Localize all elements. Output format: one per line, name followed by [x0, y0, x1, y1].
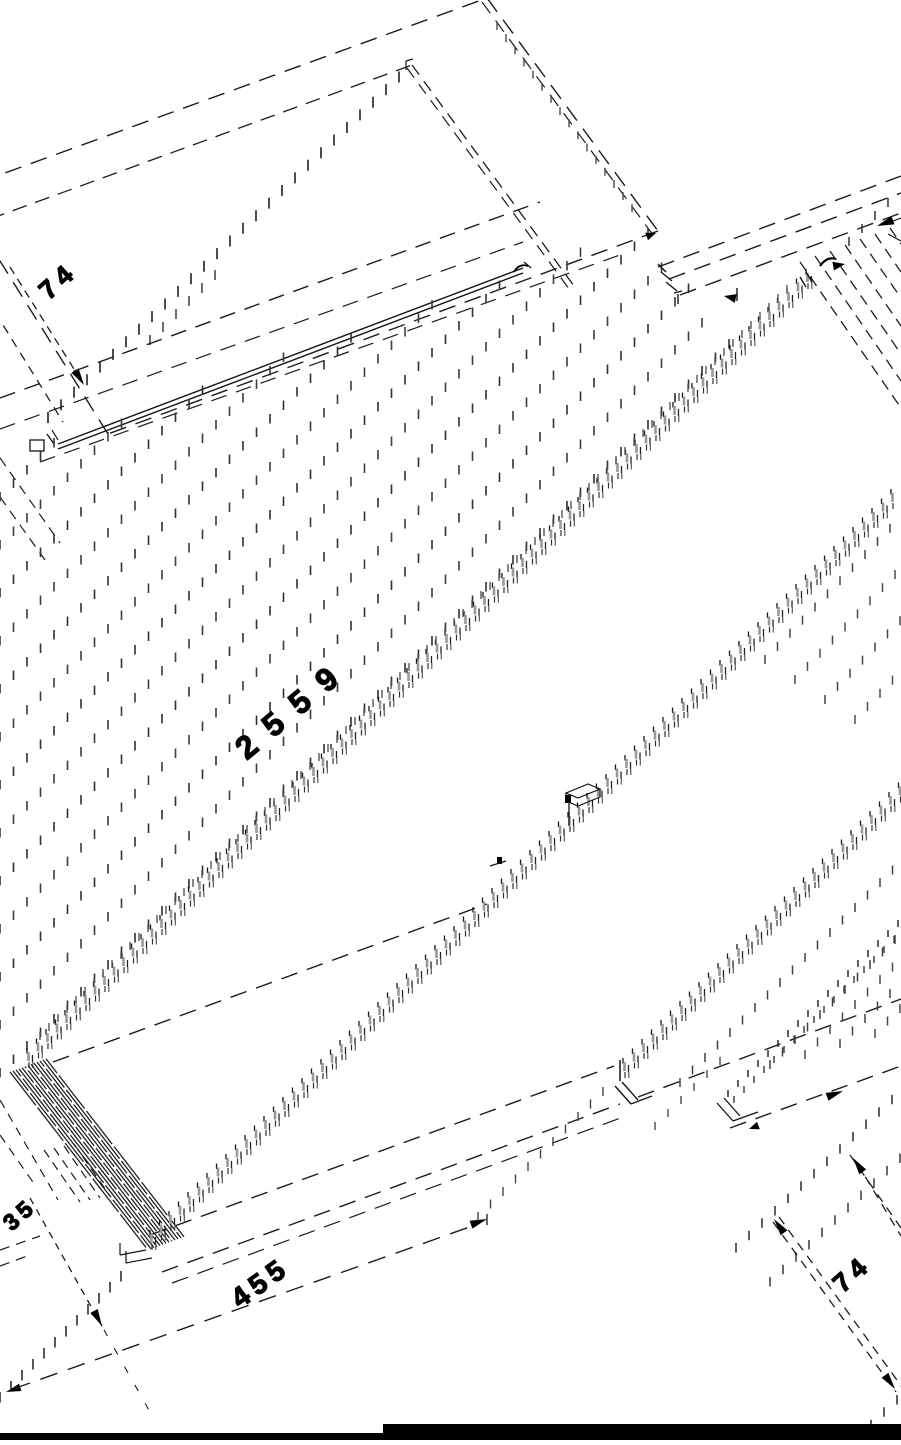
- svg-text:2559: 2559: [228, 649, 358, 766]
- svg-text:74: 74: [827, 1248, 877, 1298]
- svg-text:455: 455: [225, 1251, 296, 1314]
- svg-text:74: 74: [33, 255, 83, 305]
- svg-text:35: 35: [0, 1192, 42, 1235]
